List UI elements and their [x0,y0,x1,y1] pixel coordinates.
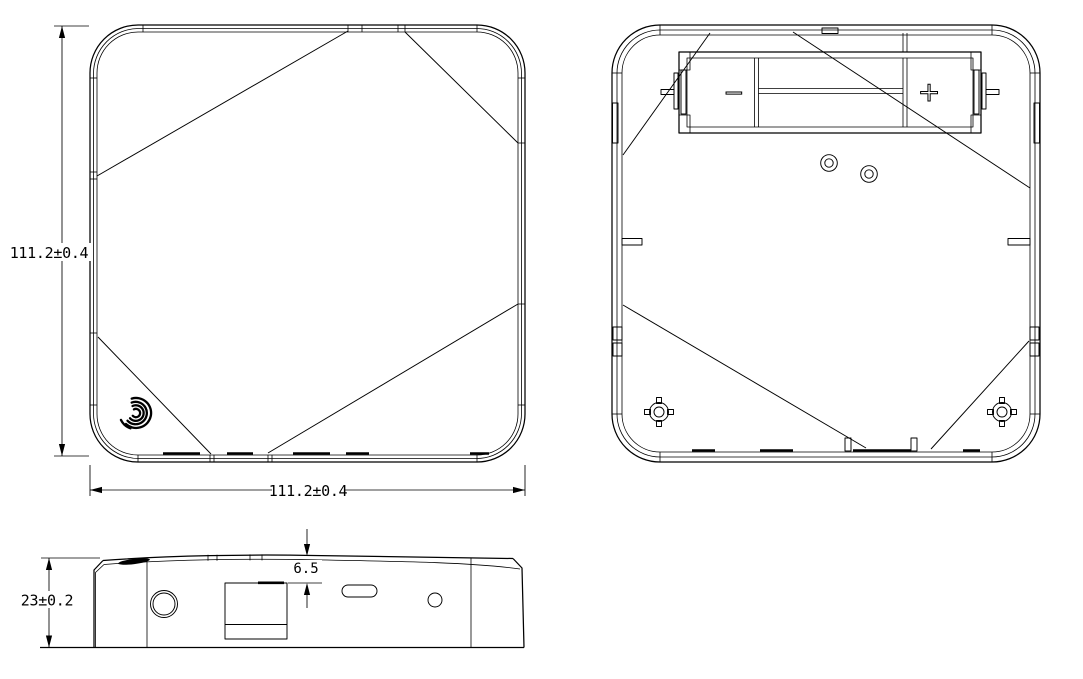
front-inner-band-2 [97,32,518,455]
battery-negative-icon: − [724,78,745,107]
side-port-opening [225,583,287,639]
back-screw-holes [821,155,878,183]
back-panel-seam-ticks [612,25,1040,462]
mounting-boss-right [988,398,1017,427]
drawing-svg: 111.2±0.4 111.2±0.4 [0,0,1083,679]
battery-positive-icon: + [918,77,941,108]
front-width-label: 111.2±0.4 [269,482,348,500]
side-recess-label: 6.5 [293,561,318,577]
back-edge-tabs [613,28,1040,451]
back-inner-band-1 [617,30,1035,457]
technical-drawing-canvas: 111.2±0.4 111.2±0.4 [0,0,1083,679]
side-right-edge [513,559,524,648]
fingerprint-swirl-icon [114,393,156,434]
front-inner-band-1 [94,29,522,459]
battery-contact-right [974,70,999,114]
front-height-label: 111.2±0.4 [10,244,89,262]
side-height-label: 23±0.2 [21,592,73,610]
side-recess-dimension: 6.5 [288,529,322,608]
battery-contact-left [661,70,686,114]
side-oval-slot [342,585,377,597]
back-view: − + [612,25,1040,462]
battery-compartment: − + [661,33,999,133]
back-outline [612,25,1040,462]
front-width-dimension: 111.2±0.4 [90,465,525,500]
front-height-dimension: 111.2±0.4 [8,26,91,456]
side-round-hole [428,593,442,607]
back-face-break-lines [623,32,1030,449]
mounting-boss-left [645,398,674,427]
front-view [90,25,525,462]
side-features [151,583,443,639]
front-face-break-lines [97,31,518,454]
side-button-outer [151,591,178,618]
side-height-dimension: 23±0.2 [18,558,100,648]
side-button-inner [153,593,175,615]
side-view [40,554,524,647]
back-inner-band-2 [622,35,1030,452]
